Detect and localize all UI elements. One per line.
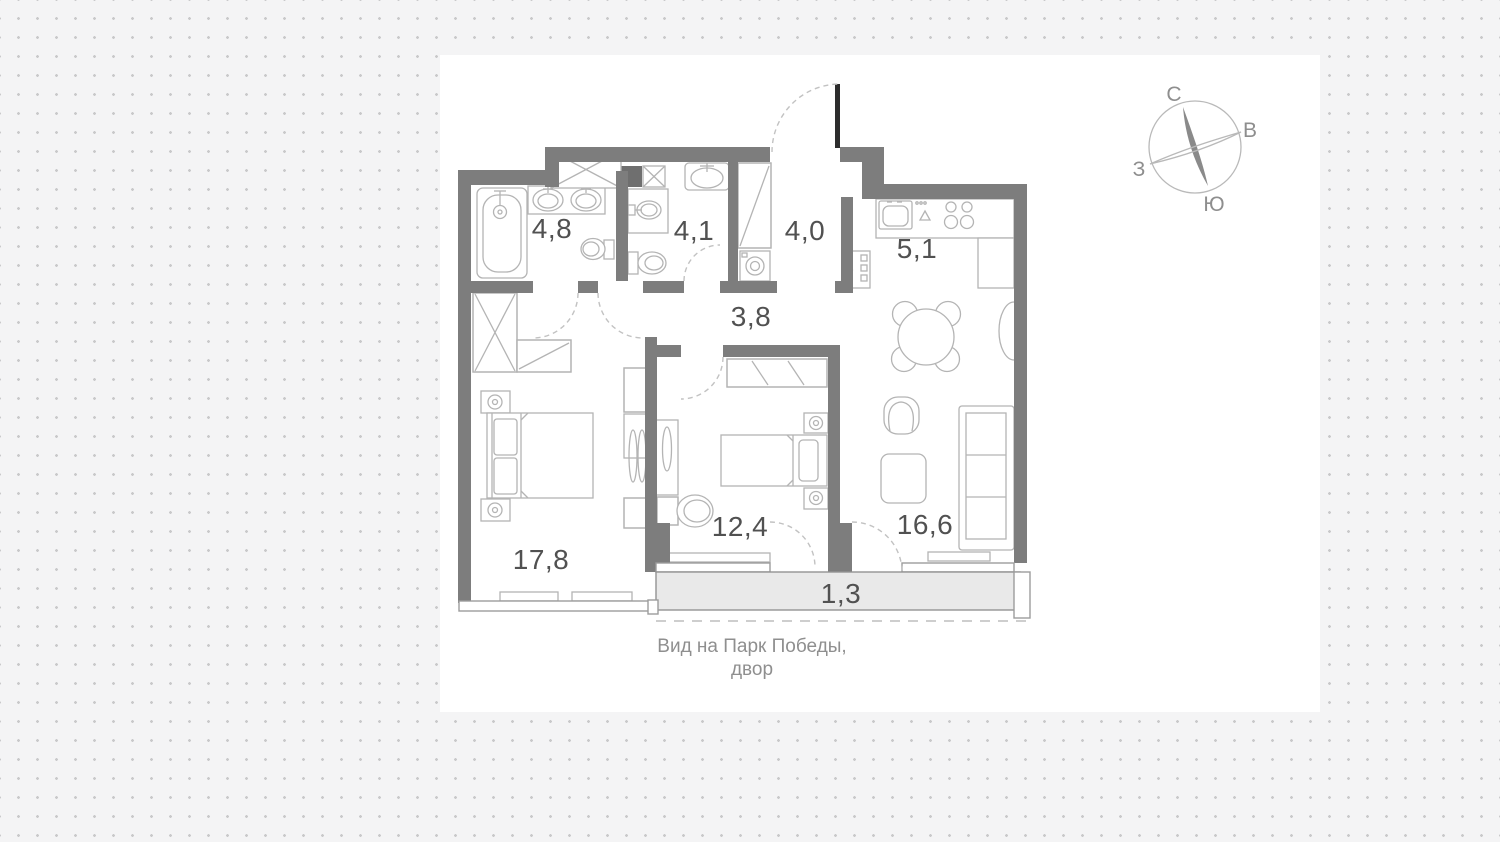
view-caption-line2: двор (731, 659, 773, 680)
floor-plan-page: { "plan": { "rooms": [ {"name": "bathroo… (0, 0, 1500, 842)
single-bed (721, 435, 827, 486)
room-label-hallway: 4,0 (785, 215, 825, 246)
balcony-post (1014, 572, 1030, 618)
toilet-bathroom (581, 239, 614, 260)
view-caption-line1: Вид на Парк Победы, (657, 636, 846, 657)
closet-drying-rack (738, 163, 771, 248)
room-label-wc: 4,1 (674, 215, 714, 246)
double-sink-vanity (528, 186, 605, 214)
room-label-living-room: 16,6 (897, 509, 954, 540)
dining-table-chairs (892, 302, 961, 372)
floor-plan-canvas: 4,8 4,1 4,0 5,1 3,8 17,8 12,4 16,6 1,3 В… (0, 0, 1500, 842)
room-label-corridor: 3,8 (731, 301, 771, 332)
compass-north-label: С (1166, 83, 1181, 106)
sofa (959, 406, 1014, 550)
armchair (884, 397, 919, 434)
cabinet-sink (628, 189, 668, 233)
compass-south-label: Ю (1203, 193, 1224, 216)
balcony-post (648, 600, 658, 614)
kitchen-sink (879, 201, 912, 229)
double-bed (487, 413, 593, 498)
nightstand (481, 391, 510, 413)
compass-west-label: З (1133, 158, 1146, 181)
toilet-wc (628, 252, 666, 274)
facade-window (656, 563, 770, 572)
washing-machine (740, 251, 770, 281)
bathtub (477, 188, 527, 278)
room-label-bedroom-2: 12,4 (712, 511, 769, 542)
entrance-door-leaf (835, 84, 840, 148)
nightstand (804, 488, 828, 509)
wall-sink (685, 163, 729, 190)
facade-window (902, 563, 1014, 572)
nightstand (804, 413, 828, 433)
desk (656, 420, 678, 495)
facade-window (459, 601, 656, 611)
wardrobe (727, 359, 827, 387)
coffee-table (881, 454, 926, 503)
room-label-bathroom: 4,8 (532, 213, 572, 244)
nightstand (481, 499, 510, 521)
room-label-kitchen: 5,1 (897, 233, 937, 264)
room-label-bedroom: 17,8 (513, 544, 570, 575)
compass-east-label: В (1243, 119, 1257, 142)
room-label-balcony: 1,3 (821, 578, 861, 609)
toilet-shape (657, 495, 713, 527)
